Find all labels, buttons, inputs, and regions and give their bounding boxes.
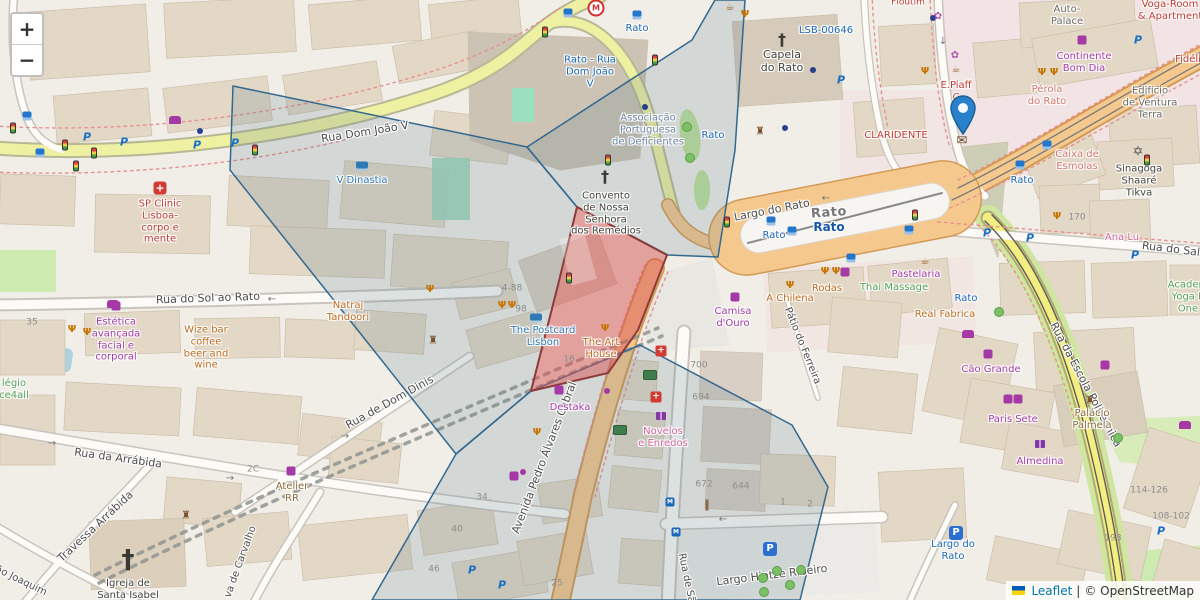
map-tiles: [0, 0, 1200, 600]
leaflet-link[interactable]: Leaflet: [1031, 584, 1072, 598]
location-marker[interactable]: [950, 95, 976, 135]
zoom-out-button[interactable]: −: [12, 45, 42, 75]
zoom-control: + −: [10, 12, 44, 77]
ukraine-flag-icon: [1012, 586, 1025, 595]
osm-attribution[interactable]: © OpenStreetMap: [1084, 584, 1194, 598]
attribution-bar: Leaflet | © OpenStreetMap: [1006, 581, 1200, 600]
map-canvas[interactable]: Rua Dom João VRua do Sol ao RatoRua da A…: [0, 0, 1200, 600]
zoom-in-button[interactable]: +: [12, 14, 42, 45]
attribution-separator: |: [1076, 584, 1080, 598]
